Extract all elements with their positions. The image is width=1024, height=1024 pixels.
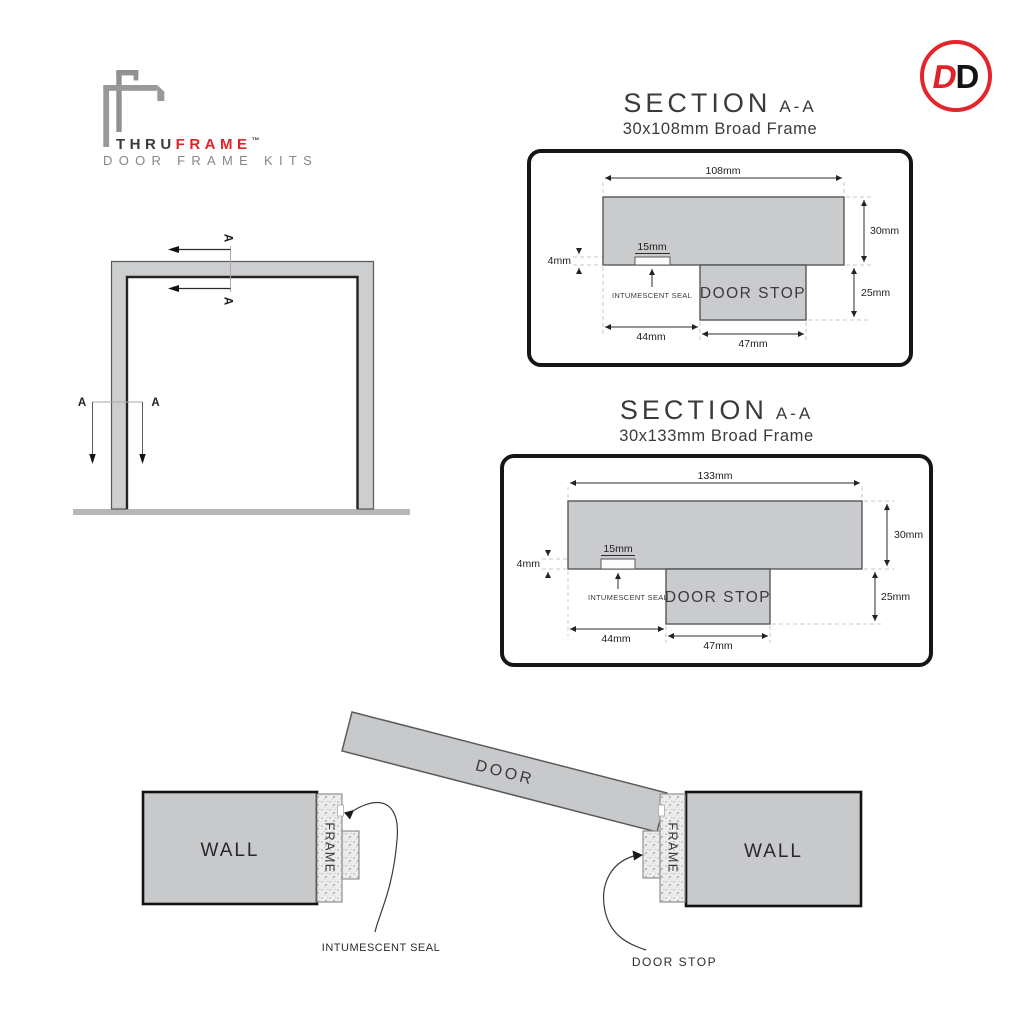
stop-width-dim: 47mm [703, 640, 732, 652]
section-marker-a: A [78, 397, 86, 409]
floor-line [73, 509, 410, 515]
brand-thru: THRU [116, 136, 176, 153]
section-2-cut-label: A-A [776, 404, 813, 423]
section-1-subtitle: 30x108mm Broad Frame [527, 120, 913, 139]
plan-detail-view: DOOR WALL FRAME INTUMESCENT SEAL WALL FR… [0, 690, 1024, 1020]
stop-annotation: DOOR STOP [632, 955, 717, 969]
seal-width-dim: 15mm [603, 543, 632, 555]
section-2-title-text: SECTION [620, 395, 768, 425]
arrow-left-icon [168, 246, 179, 253]
wall-right-label: WALL [744, 841, 803, 862]
seal-label: INTUMESCENT SEAL [612, 291, 692, 300]
seal-depth-dim: 4mm [517, 558, 541, 570]
section-2-drawing: 133mm 30mm 25mm 4mm 15mm INTUMESCENT SEA… [504, 458, 937, 671]
section-marker-a: A [222, 234, 234, 242]
arrow-icon [344, 810, 354, 820]
seal-label: INTUMESCENT SEAL [588, 593, 668, 602]
stop-width-dim: 47mm [738, 338, 767, 350]
frame-right-label: FRAME [666, 822, 680, 873]
door-frame-inner-edge [127, 277, 358, 509]
section-2-title: SECTIONA-A [500, 395, 933, 426]
wall-left-label: WALL [200, 840, 259, 861]
overall-width-dim: 133mm [697, 470, 732, 482]
stop-depth-dim: 25mm [861, 287, 890, 299]
arrow-down-icon [139, 454, 145, 464]
seal-width-dim: 15mm [637, 241, 666, 253]
section-marker-a: A [222, 297, 234, 305]
intumescent-seal-profile [601, 559, 635, 569]
brand-frame: FRAME [176, 136, 252, 153]
intumescent-seal-profile [635, 257, 670, 265]
frame-elevation-drawing: A A A A [60, 225, 420, 525]
rebate-offset-dim: 44mm [601, 633, 630, 645]
section-1-cut-label: A-A [779, 97, 816, 116]
dd-logo-badge: D D [920, 40, 992, 112]
seal-annotation: INTUMESCENT SEAL [322, 942, 440, 954]
section-1-title-text: SECTION [623, 88, 771, 118]
frame-depth-dim: 30mm [894, 529, 923, 541]
frame-left-label: FRAME [323, 822, 337, 873]
seal-depth-dim: 4mm [548, 255, 572, 267]
arrow-icon [633, 851, 644, 861]
door-stop-label: DOOR STOP [665, 589, 771, 606]
frame-depth-dim: 30mm [870, 225, 899, 237]
door-frame-kit-diagram: THRUFRAME™ DOOR FRAME KITS D D A A A A S… [0, 0, 1024, 1024]
frame-profile [603, 197, 844, 265]
stop-depth-dim: 25mm [881, 591, 910, 603]
overall-width-dim: 108mm [705, 165, 740, 177]
intumescent-seal-right [659, 805, 665, 816]
section-2-title-block: SECTIONA-A 30x133mm Broad Frame [500, 395, 933, 446]
intumescent-seal-left [338, 805, 344, 816]
door-frame-outline [112, 262, 374, 510]
trademark-symbol: ™ [252, 136, 260, 145]
brand-tagline: DOOR FRAME KITS [103, 153, 318, 168]
brand-wordmark: THRUFRAME™ [116, 136, 260, 153]
section-1-title: SECTIONA-A [527, 88, 913, 119]
door-stop-right [643, 831, 660, 878]
section-2-panel: 133mm 30mm 25mm 4mm 15mm INTUMESCENT SEA… [500, 454, 933, 667]
section-1-title-block: SECTIONA-A 30x108mm Broad Frame [527, 88, 913, 139]
section-2-subtitle: 30x133mm Broad Frame [500, 427, 933, 446]
rebate-offset-dim: 44mm [636, 331, 665, 343]
section-1-panel: 108mm 30mm 25mm 4mm 15mm INTUMESCENT SEA… [527, 149, 913, 367]
arrow-down-icon [89, 454, 95, 464]
arrow-left-icon [168, 285, 179, 292]
stop-leader-line [604, 856, 646, 950]
door-stop-label: DOOR STOP [700, 285, 806, 302]
dd-letter-2: D [956, 60, 980, 93]
door-stop-left [342, 831, 359, 879]
section-1-drawing: 108mm 30mm 25mm 4mm 15mm INTUMESCENT SEA… [531, 153, 917, 371]
logo-frame-back-shape [116, 70, 138, 132]
section-marker-a: A [151, 397, 159, 409]
